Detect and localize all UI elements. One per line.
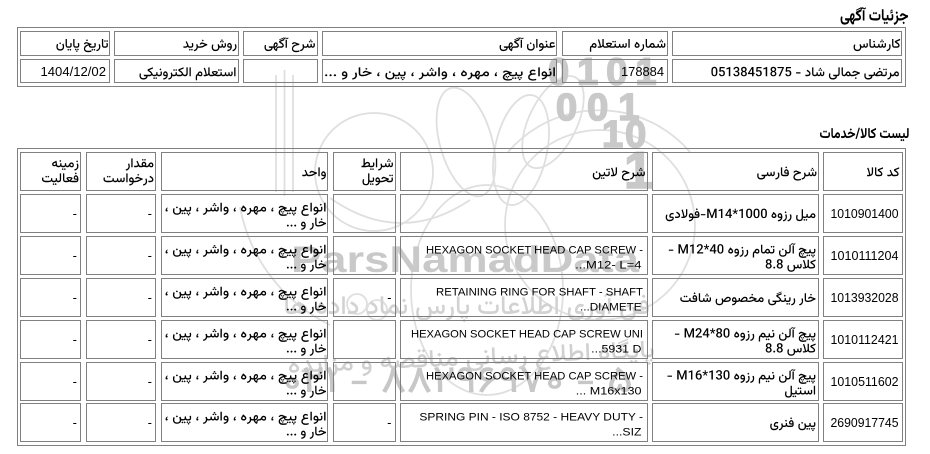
svg-text:... M16x130: ... M16x130 [576,386,642,398]
svg-text:...5931 D: ...5931 D [591,344,641,356]
svg-text:1013932028: 1013932028 [831,291,899,305]
svg-text:HEXAGON SOCKET HEAD CAP SCREW: HEXAGON SOCKET HEAD CAP SCREW - [426,371,643,383]
svg-text:RETAINING RING FOR SHAFT - SHA: RETAINING RING FOR SHAFT - SHAFT [436,287,643,299]
svg-text:HEXAGON SOCKET HEAD CAP SCREW: HEXAGON SOCKET HEAD CAP SCREW UNI [411,329,643,341]
svg-text:-: - [73,206,77,221]
svg-text:SPRING PIN - ISO 8752 - HEAVY: SPRING PIN - ISO 8752 - HEAVY DUTY - [419,412,643,424]
svg-text:-: - [148,248,152,263]
svg-text:-: - [148,332,152,347]
svg-text:1010901400: 1010901400 [831,207,899,221]
svg-text:-: - [73,248,77,263]
svg-text:-: - [73,290,77,305]
svg-text:178884: 178884 [621,64,664,79]
svg-text:-: - [73,374,77,389]
svg-text:...DIAMETE: ...DIAMETE [580,302,642,314]
svg-text:1010112421: 1010112421 [831,333,899,347]
svg-text:-: - [73,332,77,347]
svg-text:...SIZ: ...SIZ [612,427,641,439]
svg-text:...M12- L=4: ...M12- L=4 [575,260,641,272]
svg-text:1010111204: 1010111204 [831,249,899,263]
svg-text:-: - [148,290,152,305]
svg-text:2690917745: 2690917745 [831,416,899,430]
svg-text:1404/12/02: 1404/12/02 [41,64,107,79]
svg-text:-: - [387,290,391,305]
svg-text:-: - [148,374,152,389]
svg-text:-: - [148,415,152,430]
svg-text:HEXAGON SOCKET HEAD CAP SCREW: HEXAGON SOCKET HEAD CAP SCREW - [426,245,643,257]
svg-text:1010511602: 1010511602 [831,375,899,389]
svg-text:-: - [387,415,391,430]
svg-text:-: - [148,206,152,221]
svg-text:-: - [73,415,77,430]
svg-text:1: 1 [624,142,653,200]
